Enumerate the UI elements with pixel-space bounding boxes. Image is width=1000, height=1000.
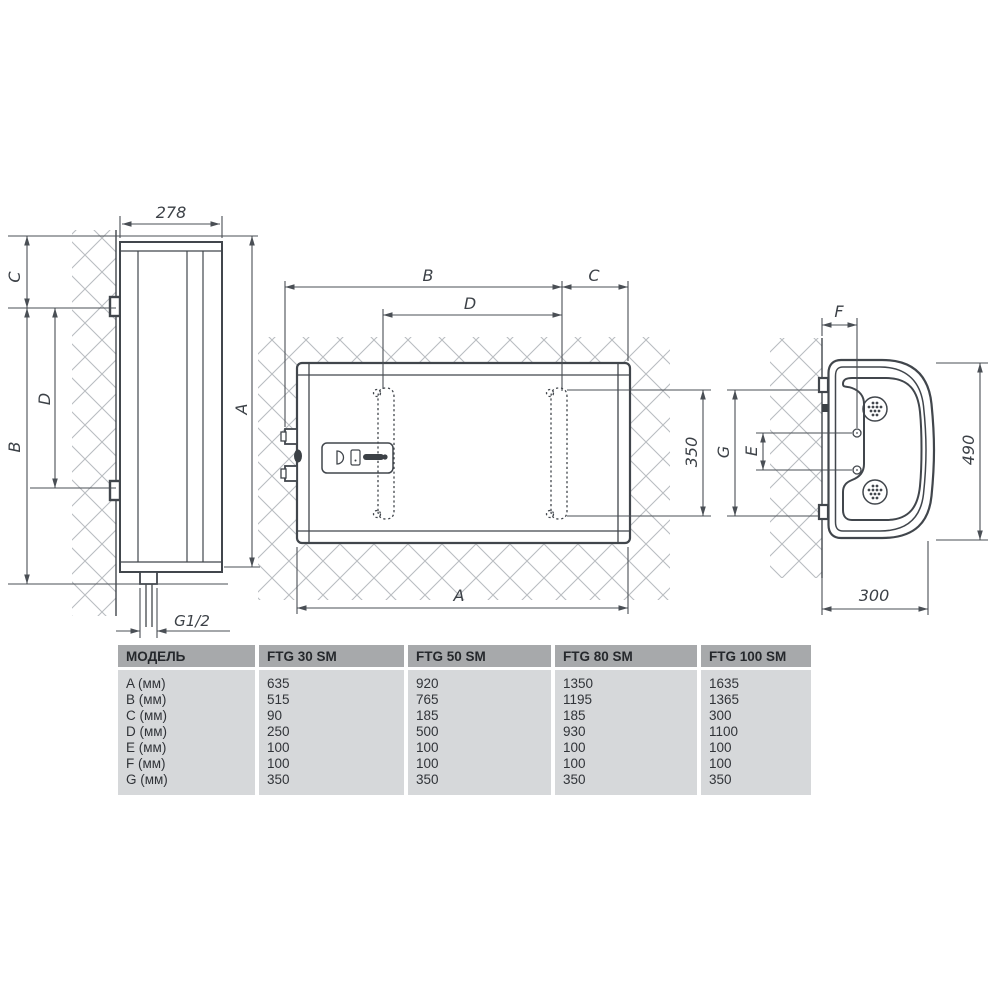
table-cell: 1195 (555, 692, 697, 708)
pipe-fitting-bottom (140, 572, 157, 584)
display-bar-icon (363, 454, 384, 460)
dim-a-front-label: A (453, 586, 465, 605)
pipe-thread-label: G1/2 (174, 612, 210, 630)
table-cell: 100 (259, 756, 404, 772)
dim-e-label: E (742, 445, 761, 456)
side-profile-view (110, 242, 222, 627)
wall-bracket-upper (110, 297, 120, 316)
column-header: FTG 80 SM (555, 645, 697, 667)
table-cell: 1100 (701, 724, 811, 740)
table-cell: 1350 (555, 676, 697, 692)
dim-a-left-label: A (232, 404, 251, 416)
table-cell: 350 (408, 772, 551, 788)
table-cell: 1365 (701, 692, 811, 708)
table-cell: 350 (701, 772, 811, 788)
spec-table: МОДЕЛЬ A (мм) B (мм) C (мм) D (мм) E (мм… (118, 645, 811, 795)
spec-column-ftg30: FTG 30 SM 635 515 90 250 100 100 350 (259, 645, 404, 795)
table-cell: 250 (259, 724, 404, 740)
spec-column-ftg100: FTG 100 SM 1635 1365 300 1100 100 100 35… (701, 645, 811, 795)
table-cell: 765 (408, 692, 551, 708)
row-label: G (мм) (118, 772, 255, 788)
table-cell: 635 (259, 676, 404, 692)
mount-tab-lower (819, 505, 828, 519)
table-cell: 930 (555, 724, 697, 740)
row-label: D (мм) (118, 724, 255, 740)
end-view (819, 360, 934, 538)
row-label: B (мм) (118, 692, 255, 708)
table-cell: 185 (555, 708, 697, 724)
table-cell: 100 (701, 756, 811, 772)
dim-490-label: 490 (959, 435, 978, 466)
row-label: F (мм) (118, 756, 255, 772)
row-label: E (мм) (118, 740, 255, 756)
spec-column-ftg50: FTG 50 SM 920 765 185 500 100 100 350 (408, 645, 551, 795)
dim-278-label: 278 (156, 203, 187, 222)
dim-350-label: 350 (682, 437, 701, 468)
table-cell: 100 (259, 740, 404, 756)
dim-d-front-label: D (464, 294, 476, 313)
table-cell: 90 (259, 708, 404, 724)
dim-b-front-label: B (423, 266, 434, 285)
dim-d-left-label: D (35, 393, 54, 405)
table-cell: 100 (555, 756, 697, 772)
water-heater-dimension-drawing: 278 C D B A G1/2 B C D A 350 F G E 490 3… (0, 0, 1000, 1000)
row-label: C (мм) (118, 708, 255, 724)
wall-bracket-lower (110, 481, 120, 500)
heater-body-side (120, 242, 222, 572)
table-cell: 185 (408, 708, 551, 724)
spec-column-ftg80: FTG 80 SM 1350 1195 185 930 100 100 350 (555, 645, 697, 795)
dim-b-left-label: B (5, 442, 24, 453)
dim-c-front-label: C (588, 266, 600, 285)
table-cell: 300 (701, 708, 811, 724)
column-header: FTG 50 SM (408, 645, 551, 667)
column-header: FTG 30 SM (259, 645, 404, 667)
table-cell: 1635 (701, 676, 811, 692)
table-cell: 350 (555, 772, 697, 788)
column-header: FTG 100 SM (701, 645, 811, 667)
table-cell: 100 (408, 740, 551, 756)
spec-column-model: МОДЕЛЬ A (мм) B (мм) C (мм) D (мм) E (мм… (118, 645, 255, 795)
table-cell: 100 (701, 740, 811, 756)
table-cell: 100 (555, 740, 697, 756)
table-cell: 515 (259, 692, 404, 708)
table-cell: 100 (408, 756, 551, 772)
dim-f-label: F (834, 302, 844, 321)
table-cell: 350 (259, 772, 404, 788)
row-label: A (мм) (118, 676, 255, 692)
dim-300-label: 300 (859, 586, 890, 605)
dim-g-label: G (714, 446, 733, 458)
column-header: МОДЕЛЬ (118, 645, 255, 667)
table-cell: 500 (408, 724, 551, 740)
dim-c-left-label: C (5, 271, 24, 283)
technical-drawing-page: 278 C D B A G1/2 B C D A 350 F G E 490 3… (0, 0, 1000, 1000)
mount-tab-upper (819, 378, 828, 392)
table-cell: 920 (408, 676, 551, 692)
